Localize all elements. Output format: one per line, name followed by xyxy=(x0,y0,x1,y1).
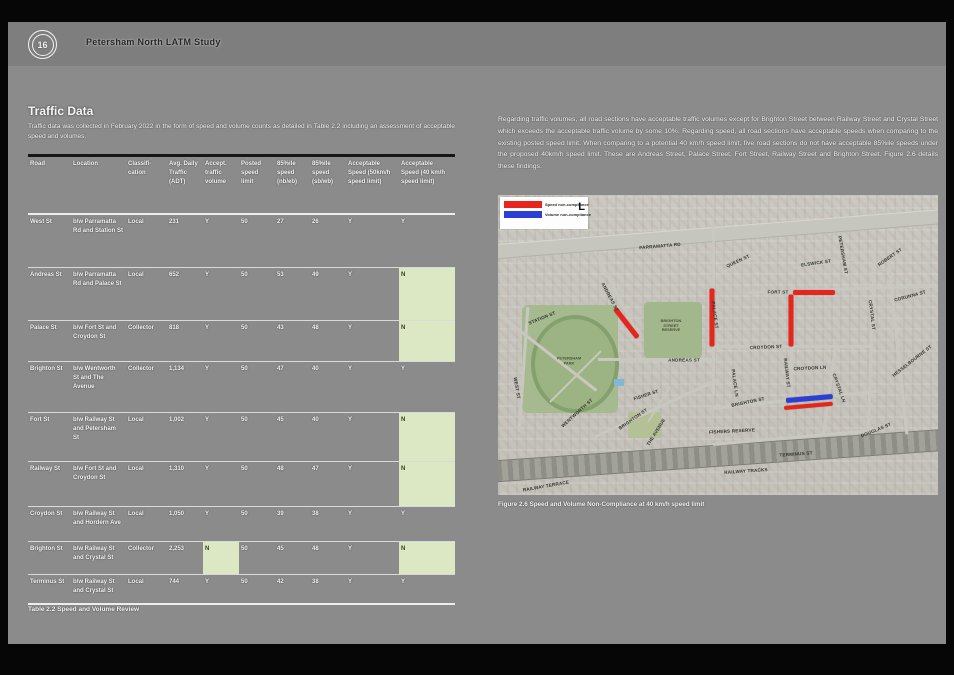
cell-speed_sb: 38 xyxy=(310,575,346,603)
table-row: Fort Stb/w Railway St and Petersham StLo… xyxy=(28,413,455,462)
cell-speed_sb: 48 xyxy=(310,321,346,361)
cell-classification: Local xyxy=(126,268,167,320)
cell-road: Railway St xyxy=(28,462,71,506)
cell-accept_40: Y xyxy=(399,215,455,267)
cell-classification: Local xyxy=(126,462,167,506)
cell-accept_50: Y xyxy=(346,362,399,412)
cell-accept_volume: Y xyxy=(203,362,239,412)
page-header-bar: 16 Petersham North LATM Study xyxy=(8,22,946,66)
column-header-accept_volume: Accept. traffic volume xyxy=(203,157,239,213)
cell-adt: 1,134 xyxy=(167,362,203,412)
cell-speed_nb: 47 xyxy=(275,362,310,412)
cell-location: b/w Railway St and Crystal St xyxy=(71,575,126,603)
cell-adt: 818 xyxy=(167,321,203,361)
cell-road: Croydon St xyxy=(28,507,71,541)
cell-posted_limit: 50 xyxy=(239,215,275,267)
table-row: Railway Stb/w Fort St and Croydon StLoca… xyxy=(28,462,455,507)
cell-accept_40: N xyxy=(399,321,455,361)
page-number: 16 xyxy=(37,40,47,50)
cell-speed_nb: 27 xyxy=(275,215,310,267)
cell-speed_nb: 39 xyxy=(275,507,310,541)
cell-accept_50: Y xyxy=(346,507,399,541)
cell-posted_limit: 50 xyxy=(239,462,275,506)
column-header-classification: Classifi- cation xyxy=(126,157,167,213)
cell-speed_sb: 26 xyxy=(310,215,346,267)
cell-accept_volume: N xyxy=(203,542,239,574)
cell-speed_nb: 45 xyxy=(275,413,310,461)
cell-accept_50: Y xyxy=(346,462,399,506)
cell-speed_nb: 43 xyxy=(275,321,310,361)
cell-location: b/w Wentworth St and The Avenue xyxy=(71,362,126,412)
cell-accept_40: Y xyxy=(399,575,455,603)
cell-location: b/w Fort St and Croydon St xyxy=(71,462,126,506)
cell-posted_limit: 50 xyxy=(239,362,275,412)
map-legend: Speed non-complianceVolume non-complianc… xyxy=(500,197,588,229)
cell-adt: 1,310 xyxy=(167,462,203,506)
table-row: Croydon Stb/w Railway St and Hordern Ave… xyxy=(28,507,455,542)
table-row: West Stb/w Parramatta Rd and Station StL… xyxy=(28,215,455,268)
cell-accept_40: Y xyxy=(399,362,455,412)
cell-classification: Collector xyxy=(126,321,167,361)
legend-mark-glyph: L xyxy=(578,201,585,213)
cell-adt: 1,002 xyxy=(167,413,203,461)
cell-speed_nb: 48 xyxy=(275,462,310,506)
cell-posted_limit: 50 xyxy=(239,268,275,320)
cell-road: Andreas St xyxy=(28,268,71,320)
aerial-map-figure: Speed non-complianceVolume non-complianc… xyxy=(498,195,938,495)
intro-paragraph: Traffic data was collected in February 2… xyxy=(28,122,455,142)
page-number-badge: 16 xyxy=(28,30,57,59)
cell-speed_nb: 42 xyxy=(275,575,310,603)
cell-road: Fort St xyxy=(28,413,71,461)
findings-paragraph: Regarding traffic volumes, all road sect… xyxy=(498,114,938,173)
cell-accept_50: Y xyxy=(346,215,399,267)
cell-adt: 231 xyxy=(167,215,203,267)
cell-road: West St xyxy=(28,215,71,267)
cell-accept_50: Y xyxy=(346,542,399,574)
cell-location: b/w Railway St and Crystal St xyxy=(71,542,126,574)
cell-speed_sb: 49 xyxy=(310,268,346,320)
cell-posted_limit: 50 xyxy=(239,575,275,603)
document-title: Petersham North LATM Study xyxy=(86,37,221,47)
figure-caption: Figure 2.6 Speed and Volume Non-Complian… xyxy=(498,501,938,508)
table-row: Brighton Stb/w Wentworth St and The Aven… xyxy=(28,362,455,413)
cell-speed_nb: 45 xyxy=(275,542,310,574)
cell-adt: 1,050 xyxy=(167,507,203,541)
speed-noncompliance-line xyxy=(793,290,835,295)
cell-speed_sb: 48 xyxy=(310,542,346,574)
cell-speed_sb: 40 xyxy=(310,413,346,461)
column-header-accept_40: Acceptable Speed (40 km/h speed limit) xyxy=(399,157,455,213)
table-row: Brighton Stb/w Railway St and Crystal St… xyxy=(28,542,455,575)
cell-location: b/w Parramatta Rd and Station St xyxy=(71,215,126,267)
cell-posted_limit: 50 xyxy=(239,542,275,574)
legend-item: Volume non-compliance xyxy=(504,211,585,218)
cell-classification: Collector xyxy=(126,542,167,574)
table-row: Terminus Stb/w Railway St and Crystal St… xyxy=(28,575,455,605)
table-header-row: RoadLocationClassifi- cationAvg. Daily T… xyxy=(28,157,455,215)
cell-adt: 652 xyxy=(167,268,203,320)
speed-noncompliance-line xyxy=(789,295,794,347)
cell-road: Brighton St xyxy=(28,542,71,574)
table-caption: Table 2.2 Speed and Volume Review xyxy=(28,606,139,613)
cell-road: Palace St xyxy=(28,321,71,361)
street-label: ANDREAS ST xyxy=(668,358,700,363)
cell-accept_50: Y xyxy=(346,268,399,320)
cell-adt: 2,253 xyxy=(167,542,203,574)
cell-road: Brighton St xyxy=(28,362,71,412)
cell-accept_40: N xyxy=(399,542,455,574)
legend-color-chip xyxy=(504,211,542,218)
cell-accept_40: Y xyxy=(399,507,455,541)
cell-accept_40: N xyxy=(399,268,455,320)
column-header-adt: Avg. Daily Traffic (ADT) xyxy=(167,157,203,213)
column-header-accept_50: Acceptable Speed (50km/h speed limit) xyxy=(346,157,399,213)
cell-location: b/w Railway St and Hordern Ave xyxy=(71,507,126,541)
speed-volume-table: RoadLocationClassifi- cationAvg. Daily T… xyxy=(28,154,455,605)
cell-classification: Local xyxy=(126,215,167,267)
cell-accept_volume: Y xyxy=(203,413,239,461)
cell-posted_limit: 50 xyxy=(239,507,275,541)
cell-location: b/w Parramatta Rd and Palace St xyxy=(71,268,126,320)
column-header-posted_limit: Posted speed limit xyxy=(239,157,275,213)
cell-accept_50: Y xyxy=(346,413,399,461)
report-page: 16 Petersham North LATM Study Traffic Da… xyxy=(8,22,946,644)
cell-classification: Collector xyxy=(126,362,167,412)
cell-accept_volume: Y xyxy=(203,321,239,361)
cell-accept_50: Y xyxy=(346,321,399,361)
cell-posted_limit: 50 xyxy=(239,321,275,361)
table-row: Andreas Stb/w Parramatta Rd and Palace S… xyxy=(28,268,455,321)
cell-accept_volume: Y xyxy=(203,268,239,320)
legend-item: Speed non-compliance xyxy=(504,201,585,208)
cell-accept_volume: Y xyxy=(203,575,239,603)
street-label: FORT ST xyxy=(767,290,788,295)
cell-accept_50: Y xyxy=(346,575,399,603)
cell-classification: Local xyxy=(126,507,167,541)
cell-accept_40: N xyxy=(399,462,455,506)
column-header-road: Road xyxy=(28,157,71,213)
cell-location: b/w Fort St and Croydon St xyxy=(71,321,126,361)
cell-adt: 744 xyxy=(167,575,203,603)
cell-location: b/w Railway St and Petersham St xyxy=(71,413,126,461)
cell-road: Terminus St xyxy=(28,575,71,603)
cell-accept_volume: Y xyxy=(203,462,239,506)
column-header-speed_sb: 85%ile speed (sb/wb) xyxy=(310,157,346,213)
cell-speed_sb: 47 xyxy=(310,462,346,506)
cell-speed_nb: 53 xyxy=(275,268,310,320)
cell-speed_sb: 40 xyxy=(310,362,346,412)
area-label: BRIGHTON STREET RESERVE xyxy=(657,319,685,333)
table-row: Palace Stb/w Fort St and Croydon StColle… xyxy=(28,321,455,362)
area-label: PETERSHAM PARK xyxy=(552,356,586,365)
cell-classification: Local xyxy=(126,413,167,461)
cell-classification: Local xyxy=(126,575,167,603)
cell-accept_volume: Y xyxy=(203,215,239,267)
cell-accept_40: N xyxy=(399,413,455,461)
section-heading: Traffic Data xyxy=(28,104,93,118)
swimming-pool xyxy=(614,379,624,386)
cell-accept_volume: Y xyxy=(203,507,239,541)
column-header-speed_nb: 85%ile speed (nb/eb) xyxy=(275,157,310,213)
cell-posted_limit: 50 xyxy=(239,413,275,461)
legend-color-chip xyxy=(504,201,542,208)
cell-speed_sb: 38 xyxy=(310,507,346,541)
column-header-location: Location xyxy=(71,157,126,213)
